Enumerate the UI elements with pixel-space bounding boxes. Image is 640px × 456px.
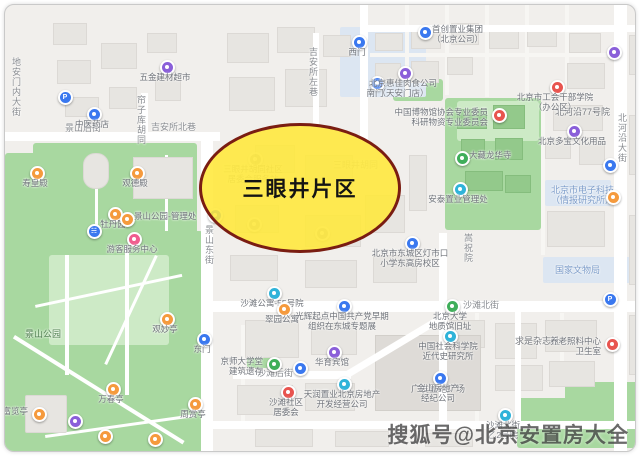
poi-label: 京师大学堂建筑遗存 xyxy=(103,357,263,377)
building-block xyxy=(567,63,605,89)
map-pin[interactable] xyxy=(607,45,622,60)
building-block xyxy=(285,69,327,107)
poi-label: 北京市东城区灯市口小学东高房校区 xyxy=(330,249,490,269)
pin-dot-icon xyxy=(460,156,464,160)
map-pin[interactable] xyxy=(120,212,135,227)
poi-label: 东门 xyxy=(122,345,282,355)
poi-label: 西门 xyxy=(277,48,437,58)
poi-label: 大藏龙华寺 xyxy=(469,151,512,161)
facility-icon: ☵ xyxy=(89,226,100,237)
pin-dot-icon xyxy=(113,212,117,216)
map-pin[interactable]: ☵ xyxy=(87,224,102,239)
poi-label: 金山房地产经纪公司 xyxy=(358,384,518,404)
minor-lane xyxy=(485,5,489,97)
pin-dot-icon xyxy=(92,112,96,116)
street-label: 沙滩北街 xyxy=(463,301,499,310)
road xyxy=(614,5,627,452)
pin-dot-icon xyxy=(342,382,346,386)
building-block xyxy=(109,87,137,109)
pin-dot-icon xyxy=(73,419,77,423)
pin-dot-icon xyxy=(555,85,559,89)
poi-label: 北京多宝文化用品 xyxy=(492,137,636,147)
temple-building xyxy=(505,175,531,193)
pin-dot-icon xyxy=(611,195,615,199)
poi-label: 观妙亭 xyxy=(85,325,245,335)
map-frame: 地安门内大街帘子库胡同吉安所左巷景山后街吉安所北巷景山东街北河沿大街嵩祝院沙滩北… xyxy=(4,4,636,452)
highlight-ellipse: 三眼井片区 xyxy=(199,123,401,253)
pin-dot-icon xyxy=(450,304,454,308)
pin-dot-icon xyxy=(503,413,507,417)
building-block xyxy=(547,211,605,247)
pin-dot-icon xyxy=(111,387,115,391)
building-block xyxy=(147,33,177,53)
pin-dot-icon xyxy=(342,304,346,308)
pin-dot-icon xyxy=(165,317,169,321)
poi-label: 富览亭 xyxy=(4,407,28,417)
poi-label: 景山公园-管理处 xyxy=(134,212,196,222)
road xyxy=(5,132,220,141)
building-block xyxy=(549,361,595,387)
poi-label: 北京惠佳肉食公司（天安门店） xyxy=(323,79,483,99)
temple-building xyxy=(465,171,503,191)
poi-label: 安泰置业管理处 xyxy=(378,195,538,205)
building-block xyxy=(53,23,87,45)
pin-dot-icon xyxy=(202,337,206,341)
map-pin[interactable] xyxy=(68,414,83,429)
street-label: 地安门内大街 xyxy=(11,57,20,117)
building-block xyxy=(255,429,313,447)
map-canvas[interactable]: 地安门内大街帘子库胡同吉安所左巷景山后街吉安所北巷景山东街北河沿大街嵩祝院沙滩北… xyxy=(5,5,635,451)
pin-dot-icon xyxy=(282,307,286,311)
pin-dot-icon xyxy=(135,171,139,175)
poi-label: 万春亭 xyxy=(31,395,191,405)
map-pin[interactable] xyxy=(418,25,433,40)
park-path xyxy=(65,255,69,375)
minor-lane xyxy=(525,5,529,95)
poi-label: 首创置业集团（北京公司） xyxy=(432,25,483,45)
pin-dot-icon xyxy=(153,437,157,441)
building-block xyxy=(447,57,473,75)
road xyxy=(360,25,636,32)
pin-dot-icon xyxy=(608,163,612,167)
pin-dot-icon xyxy=(610,342,614,346)
building-block xyxy=(629,35,636,75)
watermark: 搜狐号@北京安置房大全 xyxy=(388,419,629,449)
map-pin[interactable] xyxy=(148,432,163,447)
poi-label: 沙滩公寓-55号院 xyxy=(192,299,352,309)
building-block xyxy=(569,33,601,53)
poi-label: 周赏亭 xyxy=(113,410,273,420)
building-block xyxy=(227,33,269,63)
building-block xyxy=(335,431,389,447)
pin-dot-icon xyxy=(37,412,41,416)
parking-icon: P xyxy=(605,294,616,305)
poi-label: 养老照料中心卫生室 xyxy=(441,337,601,357)
map-pin[interactable] xyxy=(492,108,507,123)
pin-dot-icon xyxy=(165,65,169,69)
minor-lane xyxy=(541,105,545,255)
pin-dot-icon xyxy=(272,291,276,295)
map-pin[interactable] xyxy=(605,337,620,352)
pin-dot-icon xyxy=(332,350,336,354)
poi-label: 游客服务中心 xyxy=(52,245,212,255)
pin-dot-icon xyxy=(572,129,576,133)
poi-label: 中国博物馆协会专业委员科研物资专业委员会 xyxy=(328,108,488,128)
pin-dot-icon xyxy=(423,30,427,34)
area-label: 北京市电子科技（情报研究所） xyxy=(551,185,614,206)
poi-label: 五金建材超市 xyxy=(85,73,245,83)
building-block xyxy=(230,255,278,281)
poi-label: 中医药店 xyxy=(12,120,172,130)
pin-dot-icon xyxy=(357,40,361,44)
area-label: 国家文物局 xyxy=(555,265,600,275)
pin-dot-icon xyxy=(403,71,407,75)
pin-dot-icon xyxy=(193,402,197,406)
pin-dot-icon xyxy=(286,390,290,394)
map-pin[interactable]: P xyxy=(58,90,73,105)
pin-dot-icon xyxy=(132,237,136,241)
building-block xyxy=(629,215,636,285)
pin-dot-icon xyxy=(125,217,129,221)
pin-dot-icon xyxy=(438,376,442,380)
map-pin[interactable] xyxy=(603,158,618,173)
map-pin[interactable] xyxy=(98,429,113,444)
map-pin[interactable] xyxy=(606,190,621,205)
pin-dot-icon xyxy=(35,171,39,175)
map-pin[interactable] xyxy=(32,407,47,422)
area-label: 景山公园 xyxy=(25,329,61,339)
pin-dot-icon xyxy=(458,187,462,191)
map-pin[interactable] xyxy=(455,151,470,166)
pin-dot-icon xyxy=(612,50,616,54)
pin-dot-icon xyxy=(410,241,414,245)
building-block xyxy=(629,315,636,375)
building-block xyxy=(489,31,519,49)
pin-dot-icon xyxy=(497,113,501,117)
building-block xyxy=(101,43,137,69)
parking-icon: P xyxy=(60,92,71,103)
map-pin[interactable]: P xyxy=(603,292,618,307)
pin-dot-icon xyxy=(103,434,107,438)
highlight-label: 三眼井片区 xyxy=(243,173,358,203)
